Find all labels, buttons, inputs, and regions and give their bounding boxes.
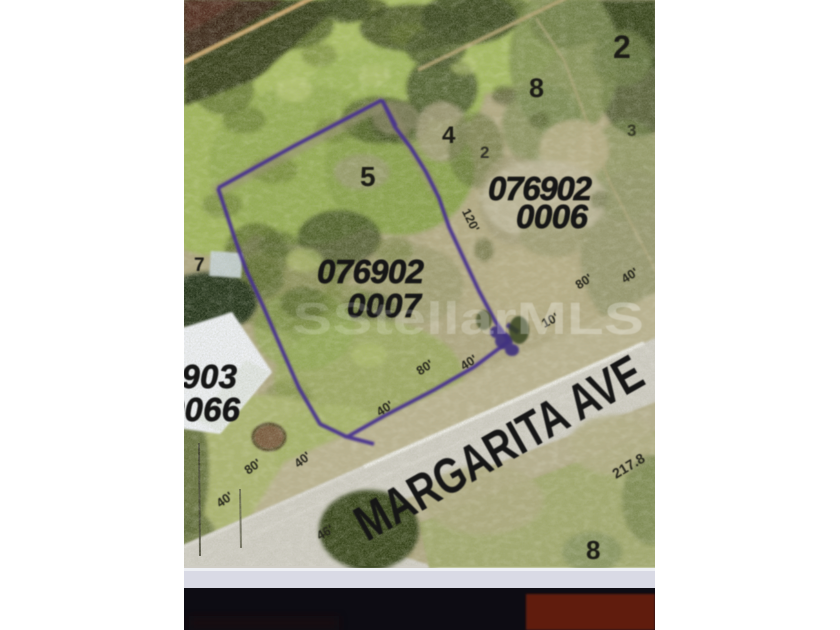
svg-text:76903: 76903: [184, 358, 237, 395]
svg-text:4: 4: [442, 122, 456, 149]
svg-text:SStellarMLS: SStellarMLS: [292, 293, 644, 344]
svg-text:3: 3: [627, 121, 636, 140]
svg-text:0066: 0066: [184, 391, 241, 428]
svg-text:2: 2: [613, 29, 631, 65]
svg-text:0006: 0006: [516, 198, 589, 235]
svg-text:8: 8: [529, 73, 544, 103]
svg-text:7: 7: [194, 255, 205, 276]
svg-text:076902: 076902: [317, 253, 425, 290]
svg-text:2: 2: [480, 143, 489, 162]
svg-text:5: 5: [360, 161, 376, 192]
svg-text:8: 8: [586, 535, 600, 565]
